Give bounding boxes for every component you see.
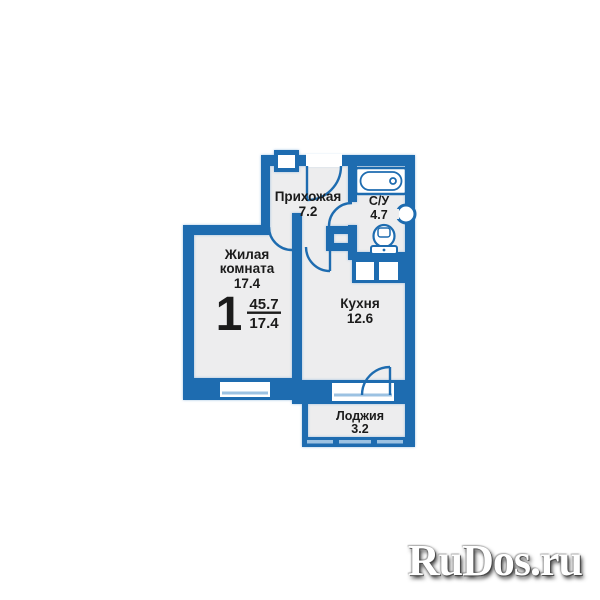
area-fraction-line — [247, 312, 281, 314]
wall-divider-living-kitchen — [292, 213, 302, 395]
floorplan-drawing: Жилая комната 17.4 1 45.7 17.4 Прихожая … — [0, 0, 600, 600]
label-kitchen-area: 12.6 — [347, 311, 374, 326]
label-total-area: 45.7 — [249, 296, 278, 313]
vent-shaft-1 — [356, 262, 374, 280]
wall-hallway-left — [261, 155, 270, 235]
label-bathroom: С/У — [369, 194, 390, 208]
label-bathroom-area: 4.7 — [370, 208, 387, 222]
vent-shaft-2 — [379, 262, 398, 280]
bathtub-drain-icon — [390, 178, 396, 184]
label-kitchen: Кухня — [340, 296, 379, 311]
label-loggia: Лоджия — [336, 409, 384, 423]
label-living-area: 17.4 — [249, 315, 279, 332]
toilet-base-dot — [383, 249, 386, 252]
wall-kitchen-top — [330, 243, 352, 251]
living-room-window — [219, 381, 271, 398]
wall-living-top — [183, 225, 269, 235]
floorplan-canvas: Жилая комната 17.4 1 45.7 17.4 Прихожая … — [0, 0, 600, 600]
label-rooms-count: 1 — [216, 288, 243, 341]
label-living-room-2: комната — [220, 261, 275, 276]
label-loggia-area: 3.2 — [351, 422, 368, 436]
toilet-inner — [378, 228, 390, 237]
sink-icon — [397, 205, 415, 223]
label-hallway: Прихожая — [275, 189, 342, 204]
label-living-room-1: Жилая — [224, 247, 269, 262]
wall-left-outer — [183, 225, 194, 400]
loggia-glazing-2 — [339, 440, 371, 444]
niche-opening — [278, 155, 295, 168]
loggia-glazing-1 — [307, 440, 333, 444]
label-hallway-area: 7.2 — [299, 204, 318, 219]
entry-door-opening — [306, 154, 342, 167]
watermark-logo: RuDos.ru — [408, 535, 582, 586]
sink-opening — [394, 209, 399, 219]
loggia-glazing-3 — [377, 440, 403, 444]
